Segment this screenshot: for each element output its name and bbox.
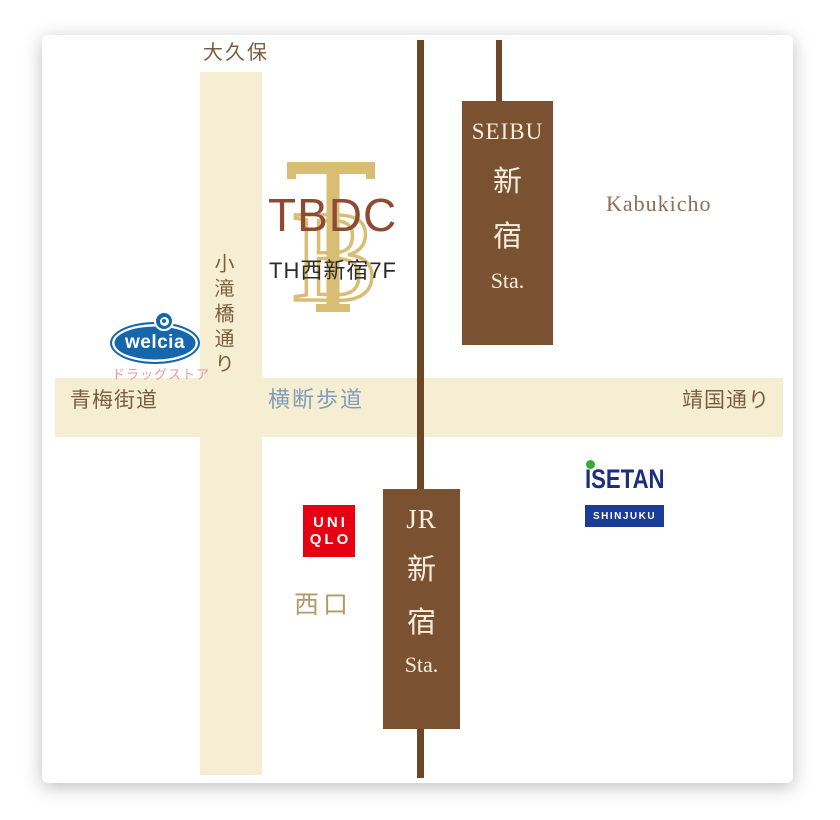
label-yasukuni-dori: 靖国通り bbox=[682, 390, 770, 411]
tbdc-address: TH西新宿7F bbox=[269, 260, 397, 282]
seibu-station-line: 新 bbox=[493, 158, 522, 200]
isetan-logo: ISETAN SHINJUKU bbox=[585, 464, 665, 528]
label-ome-kaido: 青梅街道 bbox=[70, 390, 158, 411]
jr-station-line: Sta. bbox=[405, 652, 439, 678]
label-west-exit: 西口 bbox=[294, 593, 352, 618]
welcia-dot-icon bbox=[154, 311, 174, 331]
welcia-name: welcia bbox=[125, 332, 185, 354]
label-kabukicho: Kabukicho bbox=[606, 193, 712, 215]
uniqlo-logo: UNI QLO bbox=[303, 505, 355, 557]
tbdc-name: TBDC bbox=[268, 192, 397, 238]
seibu-station-line: 宿 bbox=[493, 213, 522, 255]
label-crosswalk: 横断歩道 bbox=[268, 389, 364, 411]
welcia-oval: welcia bbox=[110, 322, 200, 364]
seibu-rail-line bbox=[496, 40, 502, 105]
jr-station-line: 新 bbox=[407, 546, 436, 588]
isetan-name: ISETAN bbox=[585, 466, 665, 493]
uniqlo-line1: UNI bbox=[310, 515, 348, 530]
jr-shinjuku-station-block: JR 新 宿 Sta. bbox=[383, 489, 460, 729]
isetan-green-dot-icon bbox=[586, 460, 595, 469]
seibu-station-line: SEIBU bbox=[472, 119, 543, 145]
label-okubo: 大久保 bbox=[203, 43, 269, 63]
welcia-dot-core bbox=[162, 319, 166, 323]
jr-station-line: 宿 bbox=[407, 599, 436, 641]
jr-station-line: JR bbox=[406, 504, 437, 535]
label-kotakibashi-dori: 小滝橋通り bbox=[212, 253, 232, 378]
welcia-dot-ring bbox=[160, 317, 169, 326]
access-map-card: 大久保 小滝橋通り 青梅街道 横断歩道 靖国通り Kabukicho 西口 SE… bbox=[42, 35, 793, 783]
isetan-shinjuku-badge: SHINJUKU bbox=[585, 505, 664, 527]
tbdc-logo: B TBDC TH西新宿7F bbox=[268, 155, 443, 330]
welcia-logo: welcia ドラッグストア bbox=[110, 312, 202, 378]
seibu-shinjuku-station-block: SEIBU 新 宿 Sta. bbox=[462, 101, 553, 345]
tbdc-monogram-icon: B bbox=[283, 160, 383, 325]
welcia-subtitle: ドラッグストア bbox=[112, 364, 210, 383]
seibu-station-line: Sta. bbox=[491, 268, 525, 294]
uniqlo-line2: QLO bbox=[307, 532, 352, 547]
